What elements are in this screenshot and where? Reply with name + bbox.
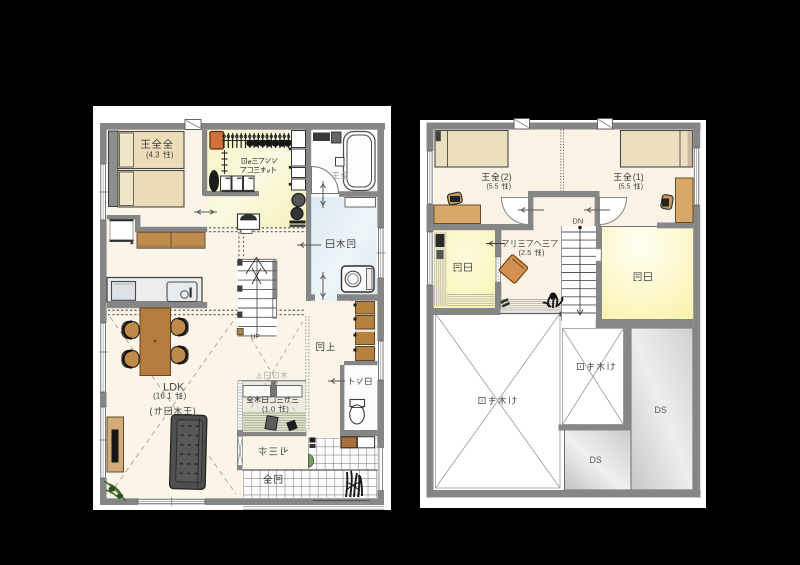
svg-text:): ) [509, 184, 511, 191]
svg-text:(16.1: (16.1 [153, 392, 172, 401]
svg-text:(2): (2) [501, 172, 512, 182]
svg-text:DS: DS [655, 405, 667, 415]
svg-text:): ) [184, 392, 187, 401]
svg-text:(1.0: (1.0 [262, 404, 275, 413]
svg-text:): ) [171, 150, 174, 159]
svg-text:): ) [641, 184, 643, 191]
svg-text:UP: UP [251, 334, 261, 341]
svg-text:DN: DN [573, 217, 584, 226]
svg-text:): ) [542, 248, 544, 257]
svg-text:): ) [193, 406, 196, 416]
svg-text:(1): (1) [633, 172, 644, 182]
svg-text:(5.5: (5.5 [487, 184, 499, 191]
svg-text:(2.5: (2.5 [519, 248, 532, 257]
svg-text:(5.5: (5.5 [619, 184, 631, 191]
svg-text:(: ( [150, 406, 153, 416]
svg-text:(4.3: (4.3 [146, 150, 159, 159]
svg-text:DS: DS [590, 455, 602, 465]
